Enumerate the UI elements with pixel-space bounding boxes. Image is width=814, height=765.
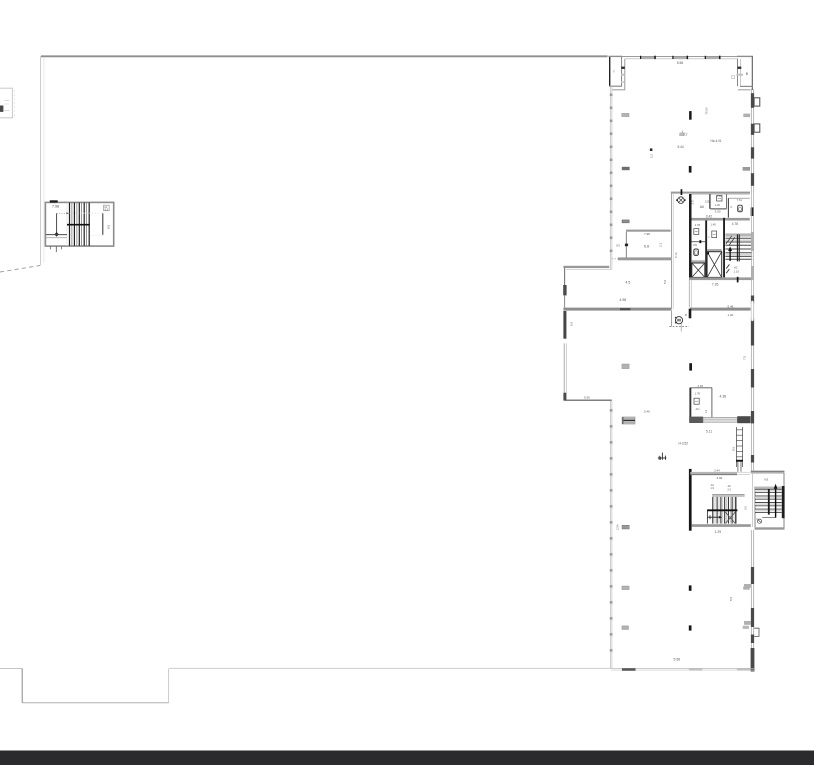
svg-text:8.3: 8.3 (105, 209, 109, 212)
svg-text:1.46: 1.46 (715, 203, 721, 207)
svg-text:7.5: 7.5 (743, 355, 747, 360)
svg-text:8.5: 8.5 (732, 446, 736, 451)
svg-text:D: D (685, 313, 687, 317)
svg-text:N3: N3 (764, 478, 768, 482)
svg-text:A/c: A/c (696, 407, 701, 411)
svg-text:1.3: 1.3 (704, 409, 708, 413)
svg-text:5.0: 5.0 (663, 279, 667, 284)
svg-text:B: B (746, 72, 748, 76)
svg-text:2.0: 2.0 (727, 487, 731, 491)
svg-text:5.56: 5.56 (584, 395, 590, 399)
svg-text:1.78: 1.78 (695, 392, 701, 396)
svg-text:U3: U3 (616, 244, 620, 248)
svg-text:4.96: 4.96 (717, 476, 723, 480)
svg-text:2.1: 2.1 (659, 242, 663, 247)
svg-text:1.20: 1.20 (728, 313, 734, 317)
svg-text:UN: UN (693, 243, 697, 247)
svg-text:4.78: 4.78 (732, 222, 738, 226)
svg-text:7.98: 7.98 (52, 205, 59, 209)
svg-text:7.61: 7.61 (737, 198, 743, 202)
svg-text:1.45: 1.45 (710, 223, 716, 227)
svg-text:1.10: 1.10 (734, 270, 740, 274)
svg-text:8.5: 8.5 (106, 224, 110, 229)
svg-text:4.5: 4.5 (626, 281, 631, 285)
svg-text:Ha 4.01: Ha 4.01 (711, 139, 722, 143)
svg-text:A6: A6 (700, 205, 704, 209)
svg-text:5.0: 5.0 (570, 321, 574, 326)
svg-text:6.8: 6.8 (644, 245, 649, 249)
svg-text:5.56: 5.56 (677, 61, 684, 65)
svg-text:A2: A2 (711, 483, 715, 487)
svg-text:2.44: 2.44 (714, 468, 720, 472)
svg-text:7.98: 7.98 (644, 232, 650, 236)
svg-text:3.0: 3.0 (743, 506, 747, 510)
svg-text:5.2: 5.2 (650, 154, 654, 158)
svg-text:5.46: 5.46 (644, 409, 650, 413)
svg-text:1.9: 1.9 (710, 486, 714, 490)
svg-text:H-3.52: H-3.52 (679, 441, 689, 445)
svg-text:Ab: Ab (728, 484, 732, 488)
svg-text:5.5: 5.5 (729, 596, 733, 601)
svg-text:75.00: 75.00 (704, 107, 708, 114)
svg-text:3MK7: 3MK7 (679, 133, 688, 137)
svg-text:125: 125 (705, 199, 710, 203)
svg-text:1.29: 1.29 (715, 530, 722, 534)
svg-text:4.93: 4.93 (698, 384, 704, 388)
svg-text:2.5: 2.5 (691, 200, 695, 205)
svg-text:5.56: 5.56 (674, 657, 681, 661)
svg-text:2.54: 2.54 (615, 524, 619, 530)
svg-text:G: G (756, 517, 758, 521)
svg-text:1.78: 1.78 (695, 223, 701, 227)
svg-text:3.00: 3.00 (715, 209, 721, 213)
svg-text:4.38: 4.38 (720, 394, 727, 398)
svg-text:5.11: 5.11 (706, 430, 712, 434)
svg-text:5.12: 5.12 (674, 252, 678, 258)
svg-text:C: C (730, 205, 732, 209)
svg-text:5.44: 5.44 (678, 145, 684, 149)
svg-text:7.26: 7.26 (712, 283, 719, 287)
svg-text:5.46: 5.46 (728, 305, 734, 309)
svg-text:1.10: 1.10 (717, 194, 723, 198)
svg-text:4.98: 4.98 (620, 298, 627, 302)
